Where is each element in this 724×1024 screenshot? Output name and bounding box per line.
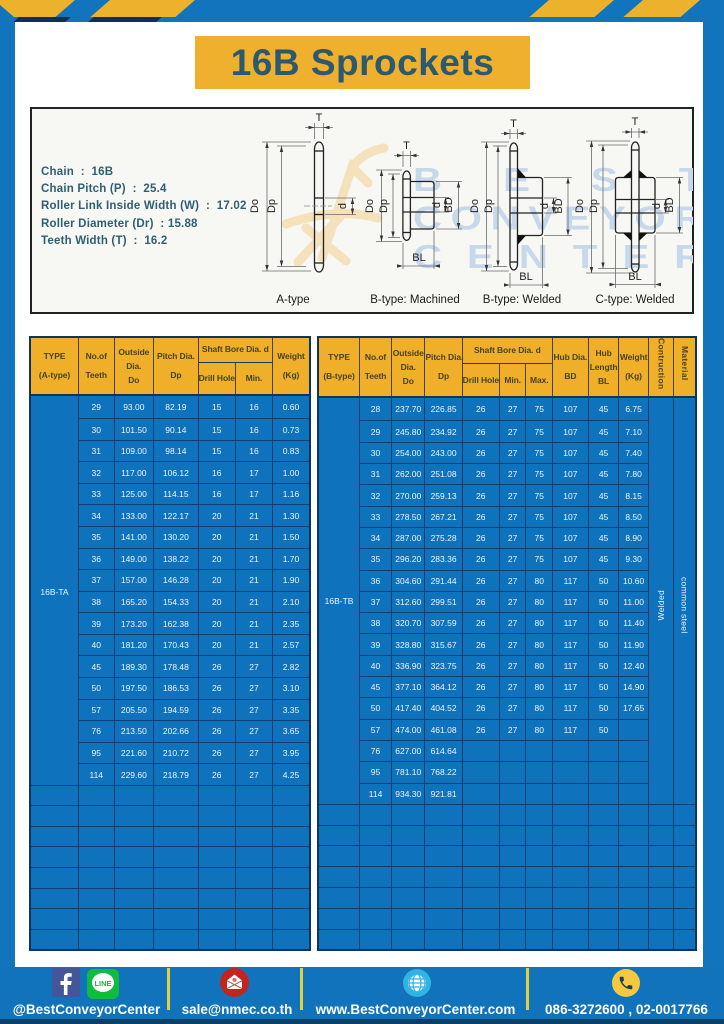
- svg-text:BL: BL: [519, 271, 532, 283]
- svg-text:T: T: [316, 112, 323, 124]
- svg-text:B-type: Machined: B-type: Machined: [370, 294, 460, 306]
- svg-text:T: T: [632, 116, 639, 128]
- svg-text:T: T: [510, 118, 517, 130]
- svg-text:d: d: [431, 202, 443, 208]
- svg-text:BEST: BEST: [413, 161, 693, 198]
- svg-text:A-type: A-type: [276, 294, 309, 306]
- svg-text:d: d: [539, 203, 551, 209]
- svg-text:Do: Do: [249, 199, 261, 213]
- svg-text:C-type: Welded: C-type: Welded: [595, 294, 674, 306]
- svg-text:BD: BD: [664, 197, 676, 212]
- svg-text:BD: BD: [443, 197, 455, 212]
- svg-text:d: d: [651, 203, 663, 209]
- svg-text:Do: Do: [574, 199, 586, 213]
- svg-text:CENTER: CENTER: [413, 238, 693, 275]
- svg-text:d: d: [337, 203, 349, 209]
- svg-text:BL: BL: [412, 252, 425, 264]
- svg-text:Dp: Dp: [378, 199, 390, 213]
- svg-text:B-type: Welded: B-type: Welded: [483, 294, 561, 306]
- svg-text:Dp: Dp: [266, 199, 278, 213]
- svg-text:Dp: Dp: [588, 199, 600, 213]
- svg-text:Dp: Dp: [483, 199, 495, 213]
- svg-text:Do: Do: [364, 199, 376, 213]
- svg-text:T: T: [403, 140, 410, 152]
- svg-text:Do: Do: [469, 199, 481, 213]
- svg-text:BL: BL: [628, 271, 641, 283]
- svg-text:LINE: LINE: [94, 979, 111, 988]
- svg-text:BD: BD: [553, 198, 565, 213]
